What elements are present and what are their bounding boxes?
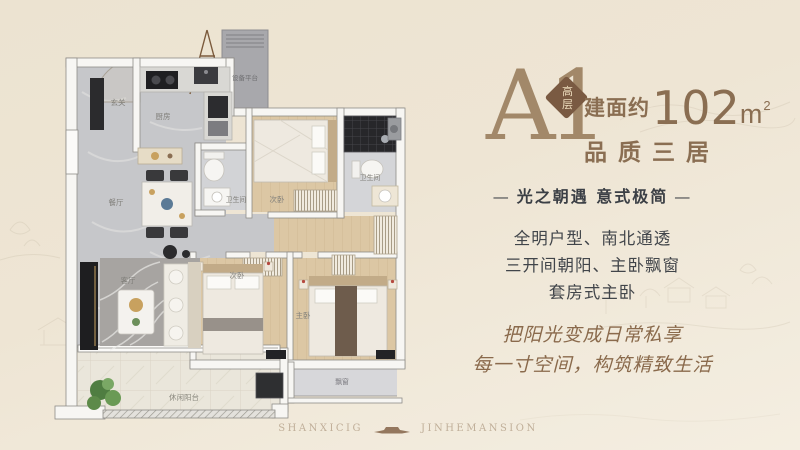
feature-item: 全明户型、南北通透 [450, 226, 735, 253]
subtitle: 品质三居 [584, 133, 770, 167]
floor-type-badge-label: 高层 [559, 85, 575, 111]
title-block: 建面约 102 m 2 品质三居 [584, 90, 770, 167]
tagline: —光之朝遇 意式极简— [450, 183, 735, 207]
slogan-line: 把阳光变成日常私享 [450, 320, 735, 350]
room-label-bay-window: 飘窗 [335, 377, 349, 386]
feature-item: 三开间朝阳、主卧飘窗 [450, 253, 735, 280]
tagline-dash-right: — [674, 187, 692, 206]
shoe-cabinet [90, 78, 104, 130]
area-exponent: 2 [763, 101, 770, 112]
room-label-bedroom-2: 次卧 [270, 194, 285, 204]
slogan-list: 把阳光变成日常私享 每一寸空间，构筑精致生活 [450, 320, 735, 380]
room-label-bedroom-3: 次卧 [230, 270, 245, 280]
room-label-bathroom-2: 卫生间 [360, 173, 381, 182]
area-line: 建面约 102 m 2 [584, 90, 770, 127]
master-wardrobe [374, 216, 397, 254]
hall-wardrobe [332, 255, 355, 275]
tagline-dash-left: — [493, 187, 511, 206]
dresser [256, 373, 283, 398]
room-label-bathroom-1: 卫生间 [226, 195, 247, 204]
room-label-kitchen: 厨房 [156, 111, 171, 121]
room-label-dining: 餐厅 [109, 198, 124, 207]
brand-left: SHANXICIG [278, 423, 363, 434]
slogan-line: 每一寸空间，构筑精致生活 [450, 350, 735, 380]
room-label-master-bedroom: 主卧 [296, 310, 311, 320]
floorplan: 玄关 厨房 设备平台 餐厅 卫生间 次卧 卫生间 客厅 次卧 主卧 休闲阳台 飘… [55, 30, 405, 419]
area-number: 102 [652, 90, 740, 127]
master-bedroom-furniture [299, 276, 397, 359]
feature-list: 全明户型、南北通透 三开间朝阳、主卧飘窗 套房式主卧 [450, 226, 735, 307]
brand-emblem-icon [372, 424, 412, 434]
room-label-entry: 玄关 [111, 97, 126, 107]
feature-item: 套房式主卧 [450, 280, 735, 307]
brand-footer: SHANXICIG JINHEMANSION [0, 423, 800, 434]
room-label-living: 客厅 [121, 275, 136, 285]
area-unit: m [740, 104, 763, 127]
poster: 玄关 厨房 设备平台 餐厅 卫生间 次卧 卫生间 客厅 次卧 主卧 休闲阳台 飘… [0, 0, 800, 450]
room-label-balcony: 休闲阳台 [169, 392, 199, 402]
balcony-parapet [103, 410, 275, 418]
tagline-text: 光之朝遇 意式极简 [517, 187, 669, 206]
brand-right: JINHEMANSION [421, 423, 538, 434]
area-prefix: 建面约 [584, 92, 650, 127]
room-label-equipment-platform: 设备平台 [232, 73, 258, 82]
floorplan-canvas: 玄关 厨房 设备平台 餐厅 卫生间 次卧 卫生间 客厅 次卧 主卧 休闲阳台 飘… [0, 0, 800, 450]
